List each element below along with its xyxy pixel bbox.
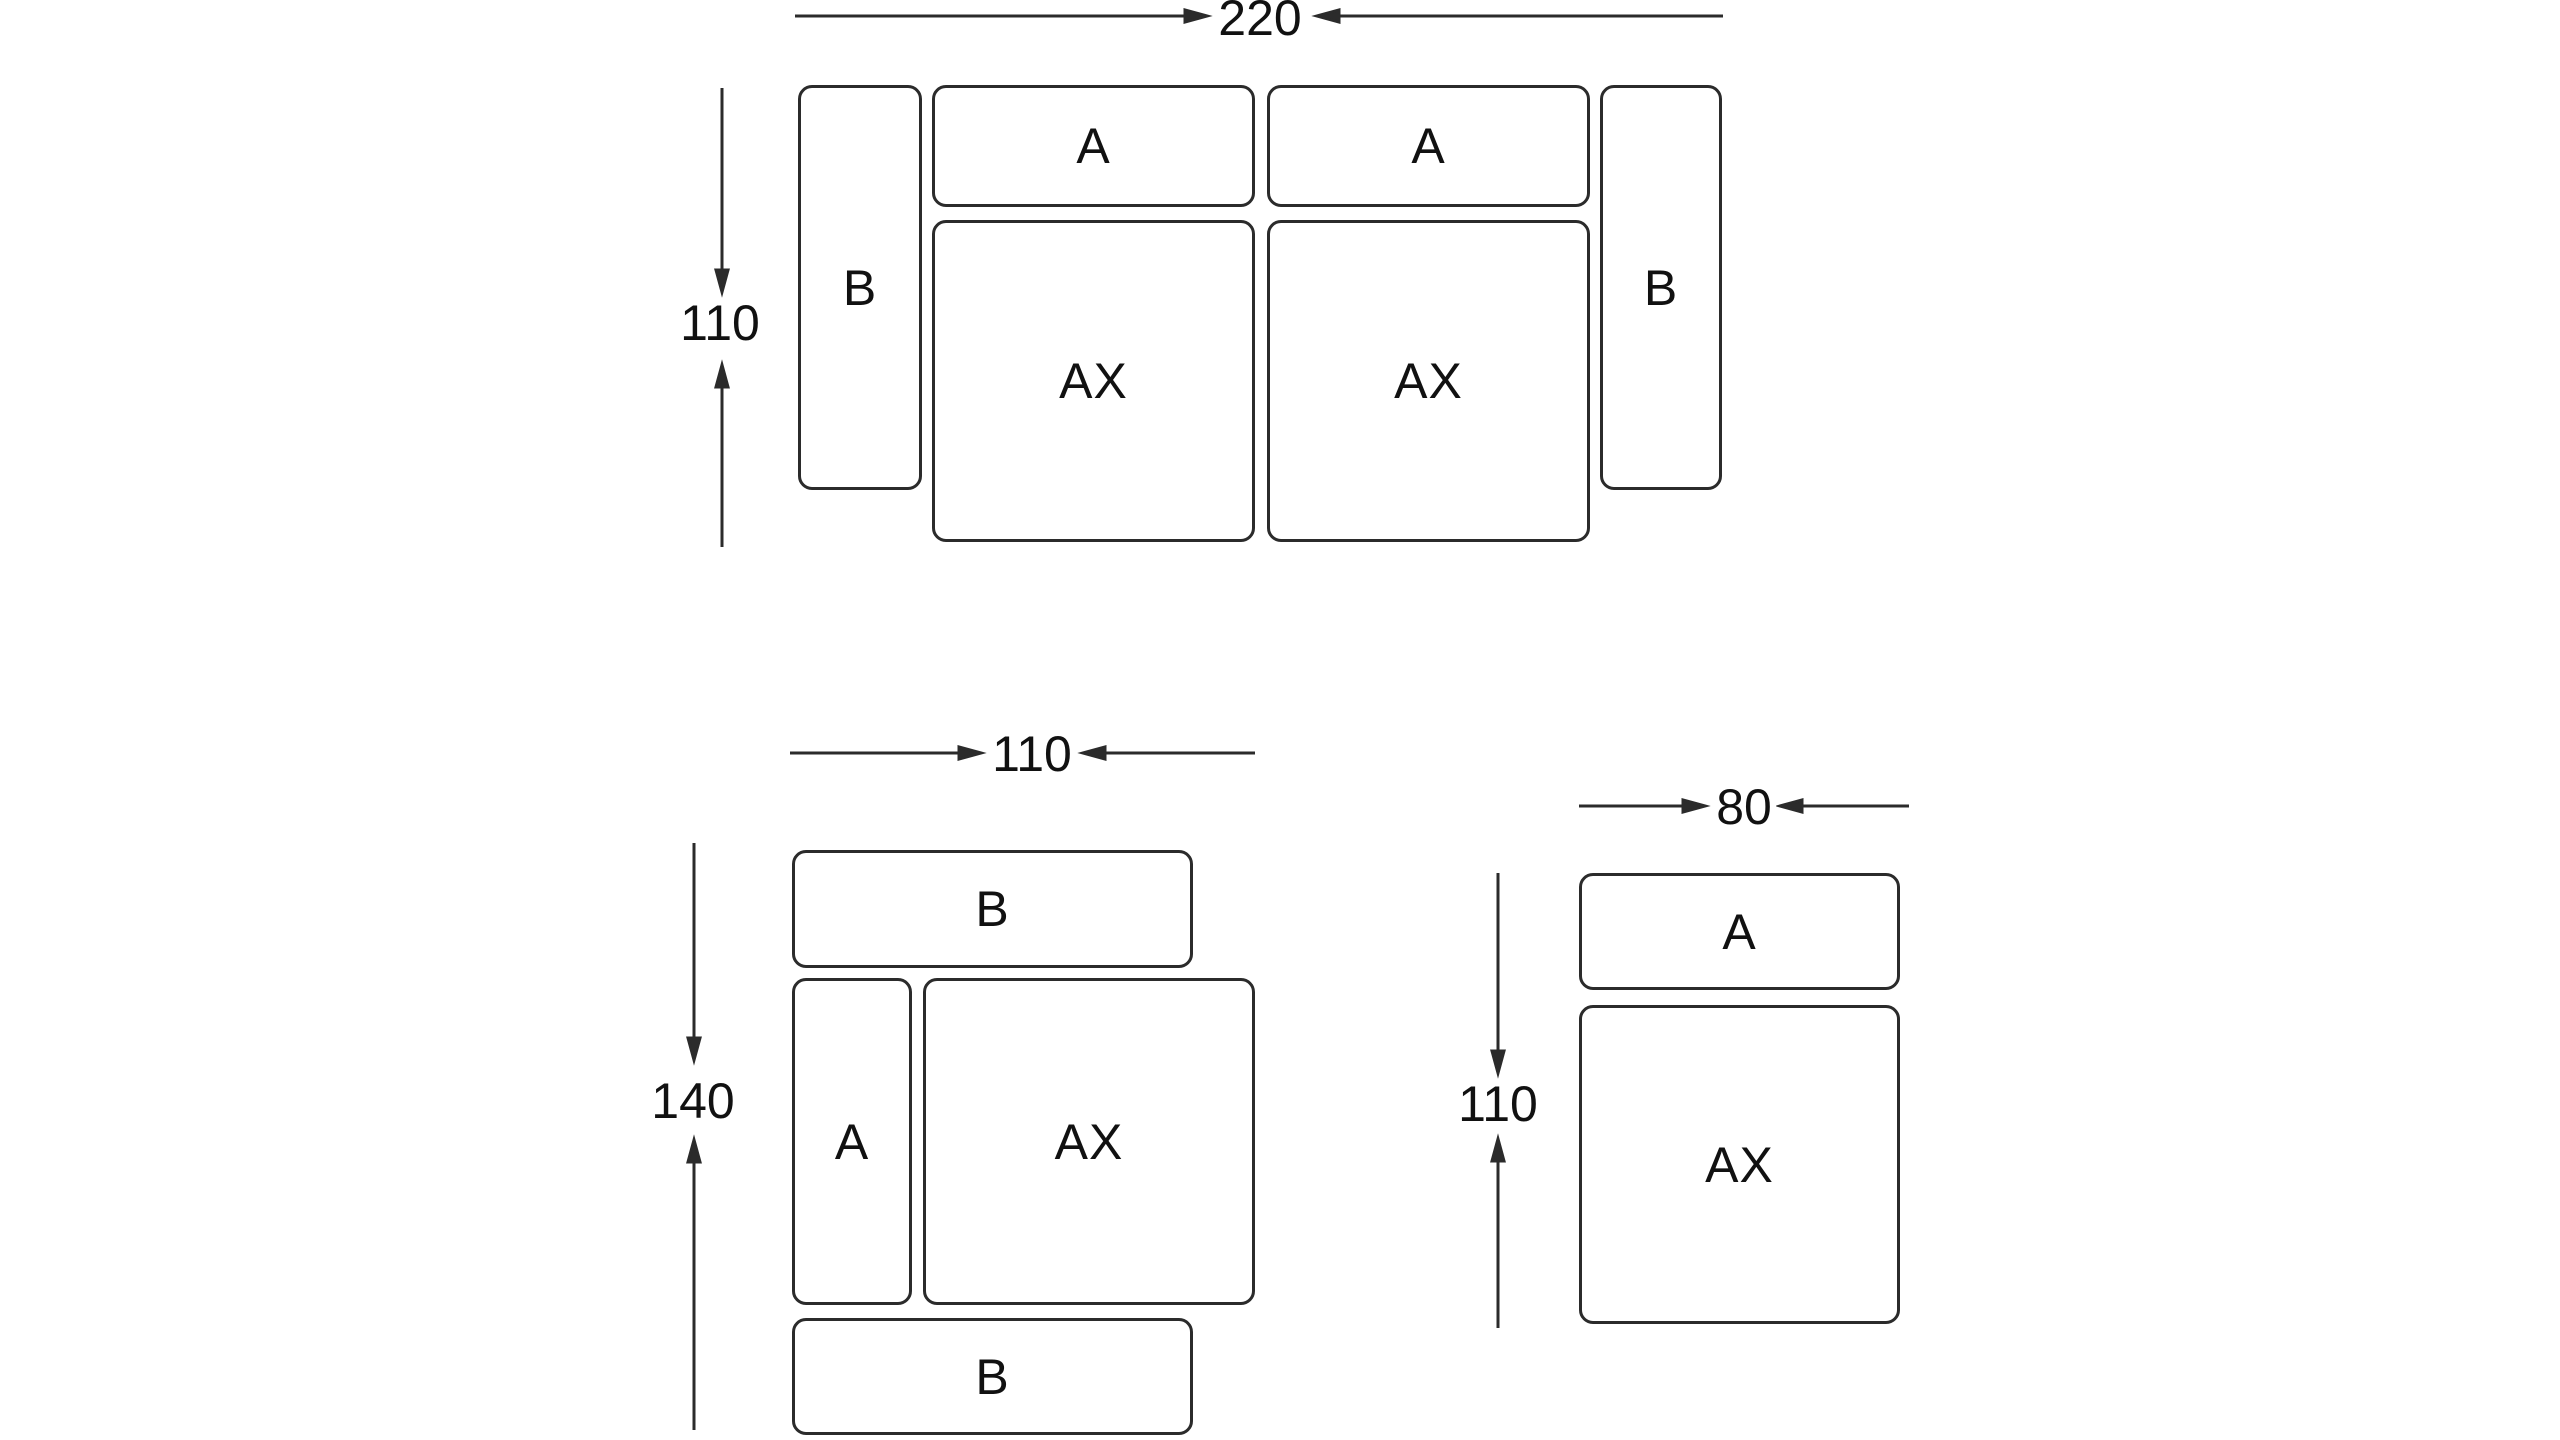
module-a-1: A: [932, 85, 1255, 207]
module-label: A: [1411, 121, 1445, 171]
module-label: B: [975, 884, 1009, 934]
arrowhead-icon: [1492, 1051, 1504, 1073]
arrowhead-icon: [688, 1140, 700, 1162]
module-b-bottom: B: [792, 1318, 1193, 1435]
dimension-lines: [0, 0, 2560, 1440]
arrowhead-icon: [1083, 747, 1105, 759]
height-dimension-label: 140: [647, 1076, 738, 1126]
width-dimension-label: 80: [1712, 782, 1776, 832]
module-label: AX: [1059, 356, 1128, 406]
arrowhead-icon: [688, 1038, 700, 1060]
arrowhead-icon: [1492, 1139, 1504, 1161]
module-label: A: [1722, 907, 1756, 957]
width-dimension-label: 220: [1214, 0, 1305, 43]
module-label: B: [1644, 263, 1678, 313]
width-dimension-label: 110: [988, 729, 1076, 779]
module-label: AX: [1055, 1117, 1124, 1167]
arrowhead-icon: [1683, 800, 1705, 812]
module-ax-1: AX: [932, 220, 1255, 542]
module-a: A: [1579, 873, 1900, 990]
module-a-2: A: [1267, 85, 1590, 207]
module-b-left: B: [798, 85, 922, 490]
module-label: AX: [1705, 1140, 1774, 1190]
arrowhead-icon: [959, 747, 981, 759]
dimension-line-vertical-d2: [688, 843, 700, 1430]
arrowhead-icon: [716, 270, 728, 292]
module-label: AX: [1394, 356, 1463, 406]
arrowhead-icon: [1317, 10, 1339, 22]
module-b-right: B: [1600, 85, 1722, 490]
furniture-dimension-diagram: 220 110 B A A AX AX B 110 140 B A AX B 8…: [0, 0, 2560, 1440]
height-dimension-label: 110: [676, 298, 764, 348]
arrowhead-icon: [1780, 800, 1802, 812]
module-label: A: [1076, 121, 1110, 171]
module-label: A: [835, 1117, 869, 1167]
module-label: B: [975, 1352, 1009, 1402]
module-ax: AX: [923, 978, 1255, 1305]
arrowhead-icon: [716, 365, 728, 387]
module-ax: AX: [1579, 1005, 1900, 1324]
arrowhead-icon: [1185, 10, 1207, 22]
module-label: B: [843, 263, 877, 313]
height-dimension-label: 110: [1454, 1079, 1542, 1129]
module-b-top: B: [792, 850, 1193, 968]
module-a: A: [792, 978, 912, 1305]
module-ax-2: AX: [1267, 220, 1590, 542]
